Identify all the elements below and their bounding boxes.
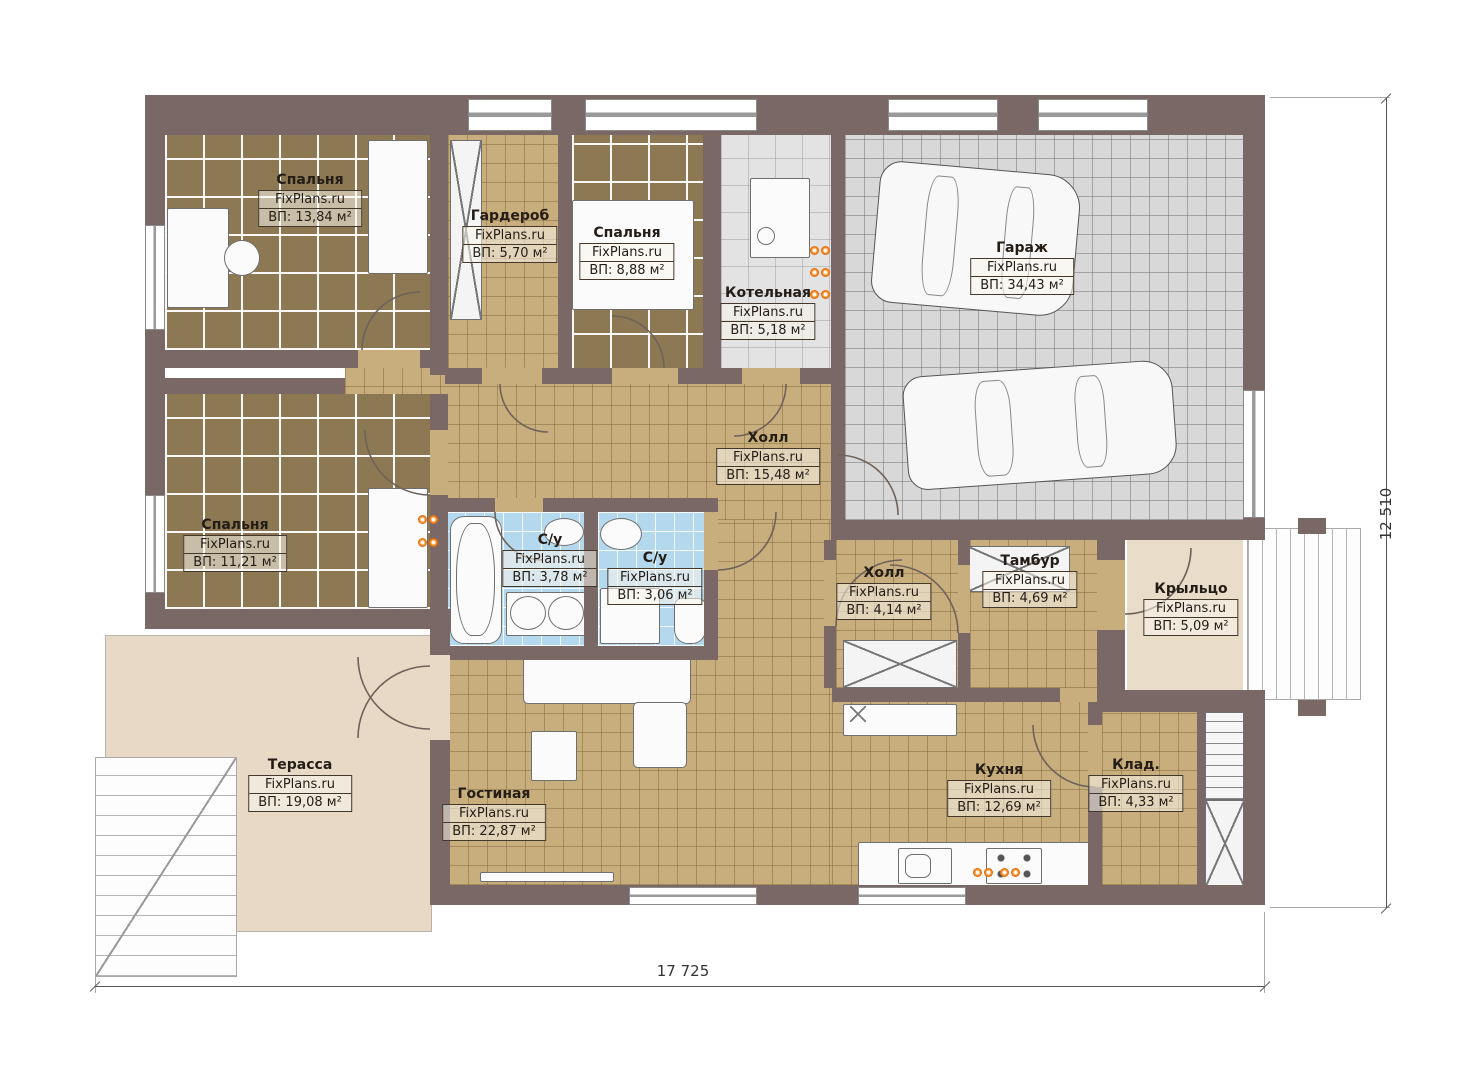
room-name: Терасса: [248, 757, 352, 773]
room-label-garage: Гараж FixPlans.ru ВП: 34,43 м²: [970, 240, 1074, 295]
label-site: FixPlans.ru: [580, 244, 673, 262]
label-site: FixPlans.ru: [837, 584, 930, 602]
door-arc: [365, 430, 430, 495]
label-box: FixPlans.ru ВП: 11,21 м²: [183, 535, 287, 572]
extension-line: [1264, 912, 1265, 993]
label-box: FixPlans.ru ВП: 15,48 м²: [716, 448, 820, 485]
label-area: ВП: 12,69 м²: [948, 799, 1050, 816]
label-site: FixPlans.ru: [503, 551, 596, 569]
label-site: FixPlans.ru: [259, 191, 361, 209]
room-name: Крыльцо: [1143, 581, 1238, 597]
room-name: Гардероб: [462, 208, 557, 224]
room-label-bath-1: С/у FixPlans.ru ВП: 3,78 м²: [502, 532, 597, 587]
label-area: ВП: 8,88 м²: [580, 262, 673, 279]
label-site: FixPlans.ru: [608, 569, 701, 587]
label-site: FixPlans.ru: [1144, 600, 1237, 618]
label-site: FixPlans.ru: [948, 781, 1050, 799]
room-name: Спальня: [258, 172, 362, 188]
door-arc: [358, 666, 430, 738]
label-box: FixPlans.ru ВП: 5,18 м²: [720, 303, 815, 340]
label-area: ВП: 4,69 м²: [983, 590, 1076, 607]
dimension-label-width: 17 725: [657, 962, 710, 980]
room-label-porch: Крыльцо FixPlans.ru ВП: 5,09 м²: [1143, 581, 1238, 636]
label-box: FixPlans.ru ВП: 12,69 м²: [947, 780, 1051, 817]
label-box: FixPlans.ru ВП: 8,88 м²: [579, 243, 674, 280]
floor-plan: Спальня FixPlans.ru ВП: 13,84 м² Гардеро…: [0, 0, 1474, 1080]
room-label-hall-2: Холл FixPlans.ru ВП: 4,14 м²: [836, 565, 931, 620]
door-arc: [718, 512, 776, 570]
label-site: FixPlans.ru: [721, 304, 814, 322]
door-arc: [734, 384, 786, 436]
room-label-bath-2: С/у FixPlans.ru ВП: 3,06 м²: [607, 550, 702, 605]
room-name: Спальня: [183, 517, 287, 533]
door-arc: [838, 455, 898, 515]
label-box: FixPlans.ru ВП: 4,33 м²: [1088, 775, 1183, 812]
label-box: FixPlans.ru ВП: 22,87 м²: [442, 804, 546, 841]
label-area: ВП: 5,09 м²: [1144, 618, 1237, 635]
label-area: ВП: 34,43 м²: [971, 277, 1073, 294]
room-label-tambur: Тамбур FixPlans.ru ВП: 4,69 м²: [982, 553, 1077, 608]
room-name: Холл: [716, 430, 820, 446]
label-area: ВП: 3,78 м²: [503, 569, 596, 586]
door-arc: [500, 384, 548, 432]
room-name: С/у: [502, 532, 597, 548]
label-area: ВП: 15,48 м²: [717, 467, 819, 484]
room-label-kitchen: Кухня FixPlans.ru ВП: 12,69 м²: [947, 762, 1051, 817]
label-area: ВП: 4,14 м²: [837, 602, 930, 619]
label-site: FixPlans.ru: [971, 259, 1073, 277]
label-box: FixPlans.ru ВП: 4,69 м²: [982, 571, 1077, 608]
door-arc: [362, 292, 420, 350]
room-label-hall-main: Холл FixPlans.ru ВП: 15,48 м²: [716, 430, 820, 485]
room-label-bedroom-1: Спальня FixPlans.ru ВП: 13,84 м²: [258, 172, 362, 227]
label-area: ВП: 22,87 м²: [443, 823, 545, 840]
dimension-label-height: 12 510: [1377, 474, 1395, 554]
label-site: FixPlans.ru: [983, 572, 1076, 590]
label-site: FixPlans.ru: [184, 536, 286, 554]
label-area: ВП: 11,21 м²: [184, 554, 286, 571]
extension-line: [1270, 97, 1390, 98]
room-label-terrace: Терасса FixPlans.ru ВП: 19,08 м²: [248, 757, 352, 812]
room-name: Спальня: [579, 225, 674, 241]
room-name: Гостиная: [442, 786, 546, 802]
label-box: FixPlans.ru ВП: 34,43 м²: [970, 258, 1074, 295]
dimension-line-width: [95, 986, 1265, 987]
label-site: FixPlans.ru: [463, 227, 556, 245]
label-site: FixPlans.ru: [249, 776, 351, 794]
label-box: FixPlans.ru ВП: 5,70 м²: [462, 226, 557, 263]
door-arc: [612, 316, 664, 368]
room-label-living: Гостиная FixPlans.ru ВП: 22,87 м²: [442, 786, 546, 841]
door-arc: [358, 657, 430, 729]
label-box: FixPlans.ru ВП: 3,06 м²: [607, 568, 702, 605]
room-name: Гараж: [970, 240, 1074, 256]
label-area: ВП: 3,06 м²: [608, 587, 701, 604]
room-name: С/у: [607, 550, 702, 566]
label-box: FixPlans.ru ВП: 5,09 м²: [1143, 599, 1238, 636]
label-area: ВП: 13,84 м²: [259, 209, 361, 226]
room-label-storage: Клад. FixPlans.ru ВП: 4,33 м²: [1088, 757, 1183, 812]
room-name: Тамбур: [982, 553, 1077, 569]
label-box: FixPlans.ru ВП: 13,84 м²: [258, 190, 362, 227]
label-area: ВП: 5,18 м²: [721, 322, 814, 339]
label-area: ВП: 19,08 м²: [249, 794, 351, 811]
label-box: FixPlans.ru ВП: 3,78 м²: [502, 550, 597, 587]
room-label-bedroom-2: Спальня FixPlans.ru ВП: 8,88 м²: [579, 225, 674, 280]
label-site: FixPlans.ru: [1089, 776, 1182, 794]
label-area: ВП: 4,33 м²: [1089, 794, 1182, 811]
room-name: Кухня: [947, 762, 1051, 778]
label-site: FixPlans.ru: [717, 449, 819, 467]
room-label-bedroom-3: Спальня FixPlans.ru ВП: 11,21 м²: [183, 517, 287, 572]
room-name: Клад.: [1088, 757, 1183, 773]
extension-line: [1270, 907, 1390, 908]
room-label-boiler: Котельная FixPlans.ru ВП: 5,18 м²: [720, 285, 815, 340]
room-label-wardrobe: Гардероб FixPlans.ru ВП: 5,70 м²: [462, 208, 557, 263]
room-name: Котельная: [720, 285, 815, 301]
room-name: Холл: [836, 565, 931, 581]
label-box: FixPlans.ru ВП: 19,08 м²: [248, 775, 352, 812]
label-box: FixPlans.ru ВП: 4,14 м²: [836, 583, 931, 620]
label-site: FixPlans.ru: [443, 805, 545, 823]
label-area: ВП: 5,70 м²: [463, 245, 556, 262]
